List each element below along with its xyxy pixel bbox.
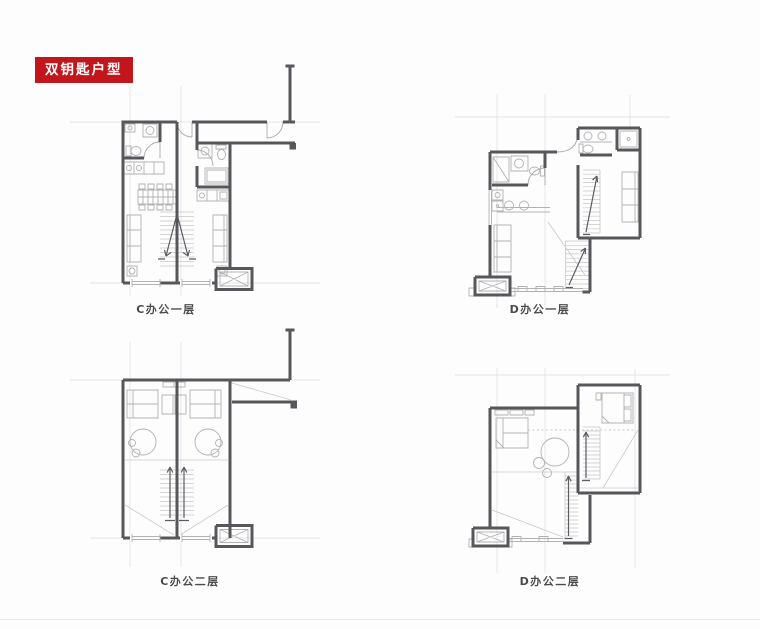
left-wall-window: [489, 190, 492, 225]
grid-lines: [70, 86, 320, 296]
walls: [475, 128, 640, 295]
floorplan-c-level1-drawing: [70, 58, 320, 300]
void-lines: [125, 383, 291, 536]
floorplan-d-level1-drawing: [455, 88, 670, 313]
caption-c-level2: C办公二层: [160, 573, 220, 589]
doors: [528, 132, 578, 185]
walls: [123, 66, 296, 290]
caption-d-level1: D办公一层: [510, 301, 571, 317]
floorplan-c-level2: [70, 322, 320, 577]
floorplan-c-level1: [70, 58, 320, 305]
caption-d-level2: D办公二层: [520, 573, 581, 589]
floorplan-d-level2-drawing: [455, 368, 670, 573]
floorplan-d-level2: [455, 368, 670, 578]
grid-lines: [70, 342, 320, 567]
void-lines: [548, 170, 600, 288]
caption-c-level1: C办公一层: [136, 301, 196, 317]
floorplan-c-level2-drawing: [70, 322, 320, 572]
fixtures: [469, 393, 633, 547]
walls: [123, 330, 297, 547]
bottom-divider: [0, 619, 760, 620]
fixtures: [469, 131, 638, 296]
bottom-windows: [508, 537, 563, 542]
void-lines: [492, 427, 638, 538]
page: 双钥匙户型: [0, 0, 760, 629]
floorplan-d-level1: [455, 88, 670, 318]
